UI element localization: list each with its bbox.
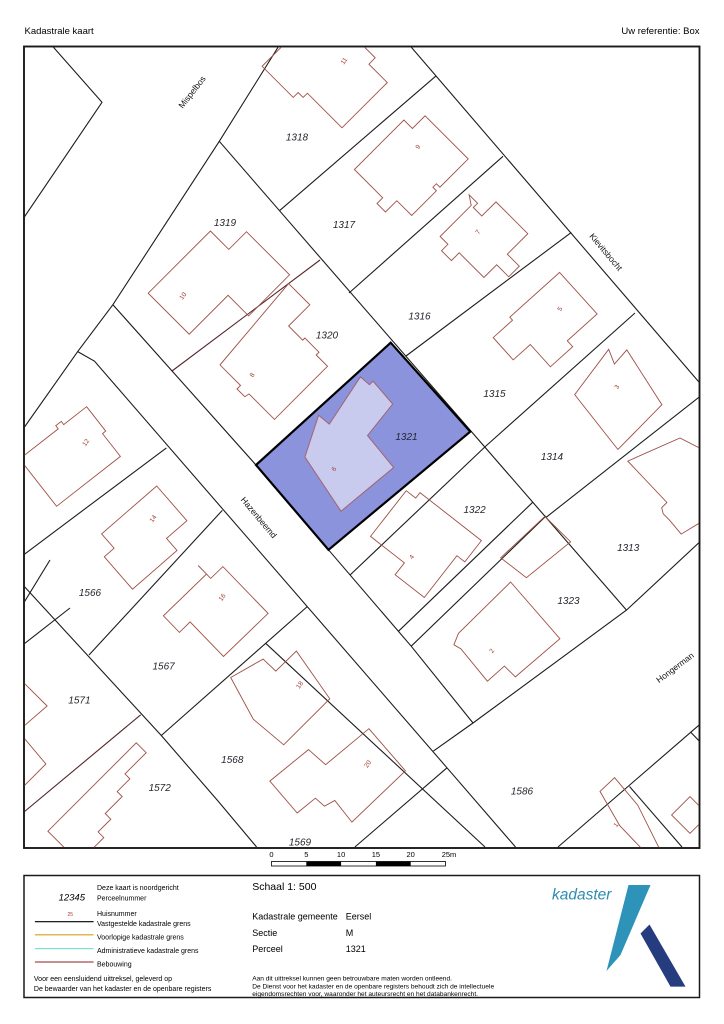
svg-text:Voor een eensluidend uittrekse: Voor een eensluidend uittreksel, gelever… bbox=[34, 976, 172, 983]
svg-text:M: M bbox=[346, 928, 354, 938]
svg-text:1567: 1567 bbox=[152, 661, 175, 672]
svg-text:1568: 1568 bbox=[221, 755, 244, 766]
svg-text:1319: 1319 bbox=[214, 218, 237, 229]
svg-text:1586: 1586 bbox=[511, 787, 534, 798]
svg-text:5: 5 bbox=[304, 850, 308, 859]
svg-text:eigendomsrechten voor, waarond: eigendomsrechten voor, waaronder het aut… bbox=[252, 991, 478, 998]
svg-text:1321: 1321 bbox=[395, 432, 417, 443]
svg-text:1566: 1566 bbox=[79, 588, 102, 599]
svg-text:1569: 1569 bbox=[289, 838, 312, 849]
svg-text:Perceelnummer: Perceelnummer bbox=[97, 896, 147, 903]
svg-text:15: 15 bbox=[372, 850, 380, 859]
svg-text:Kadastrale kaart: Kadastrale kaart bbox=[25, 26, 95, 37]
svg-text:10: 10 bbox=[337, 850, 345, 859]
svg-text:Vastgestelde kadastrale grens: Vastgestelde kadastrale grens bbox=[97, 921, 191, 928]
svg-text:1320: 1320 bbox=[316, 331, 339, 342]
svg-text:1322: 1322 bbox=[463, 505, 486, 516]
svg-text:1316: 1316 bbox=[408, 312, 431, 323]
svg-text:1315: 1315 bbox=[483, 389, 506, 400]
svg-text:Huisnummer: Huisnummer bbox=[97, 911, 137, 918]
svg-text:Schaal 1: 500: Schaal 1: 500 bbox=[252, 881, 316, 893]
svg-text:1572: 1572 bbox=[149, 783, 172, 794]
svg-text:1323: 1323 bbox=[557, 596, 580, 607]
svg-text:Voorlopige kadastrale grens: Voorlopige kadastrale grens bbox=[97, 934, 184, 941]
svg-text:25m: 25m bbox=[442, 850, 457, 859]
svg-text:1314: 1314 bbox=[541, 452, 564, 463]
svg-text:1317: 1317 bbox=[333, 220, 356, 231]
svg-text:De Dienst voor het kadaster en: De Dienst voor het kadaster en de openba… bbox=[252, 984, 494, 991]
svg-text:Deze kaart is noordgericht: Deze kaart is noordgericht bbox=[97, 885, 179, 892]
svg-text:1318: 1318 bbox=[286, 133, 309, 144]
svg-text:Administratieve kadastrale gre: Administratieve kadastrale grens bbox=[97, 948, 199, 955]
svg-text:20: 20 bbox=[407, 850, 415, 859]
svg-text:Eersel: Eersel bbox=[346, 912, 372, 922]
svg-text:Uw referentie: Box: Uw referentie: Box bbox=[621, 26, 699, 37]
svg-text:12345: 12345 bbox=[59, 893, 86, 904]
svg-text:25: 25 bbox=[67, 912, 73, 918]
svg-text:Kadastrale gemeente: Kadastrale gemeente bbox=[252, 912, 338, 922]
svg-text:De bewaarder van het kadaster: De bewaarder van het kadaster en de open… bbox=[34, 986, 212, 993]
svg-text:Bebouwing: Bebouwing bbox=[97, 962, 132, 969]
svg-text:Perceel: Perceel bbox=[252, 944, 283, 954]
svg-text:1321: 1321 bbox=[346, 944, 366, 954]
svg-text:Aan dit uittreksel kunnen geen: Aan dit uittreksel kunnen geen betrouwba… bbox=[252, 976, 452, 983]
svg-text:Sectie: Sectie bbox=[252, 928, 277, 938]
svg-text:1313: 1313 bbox=[617, 543, 640, 554]
svg-text:0: 0 bbox=[269, 850, 273, 859]
svg-text:1571: 1571 bbox=[68, 696, 90, 707]
svg-text:kadaster: kadaster bbox=[552, 887, 612, 904]
